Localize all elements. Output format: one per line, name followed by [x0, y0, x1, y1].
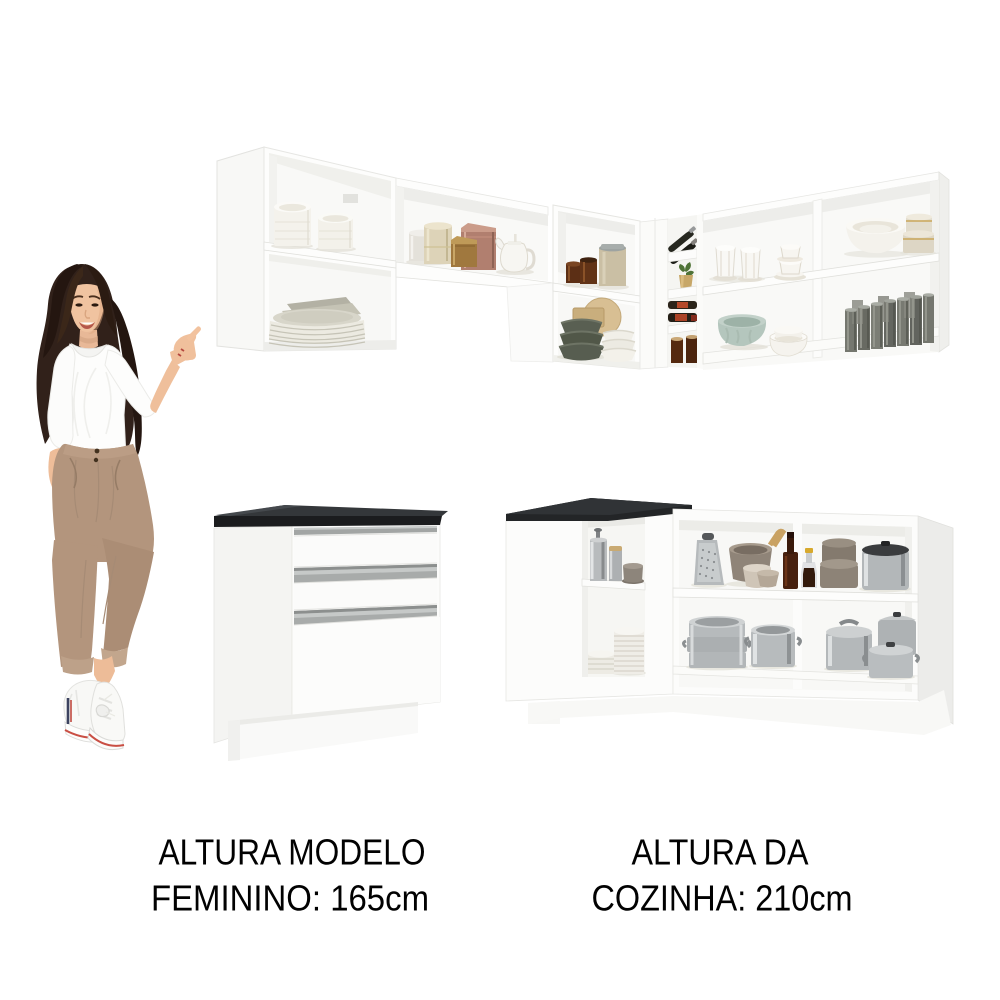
svg-text:FEMININO: 165cm: FEMININO: 165cm: [151, 878, 429, 919]
svg-text:COZINHA: 210cm: COZINHA: 210cm: [592, 878, 853, 919]
svg-text:ALTURA DA: ALTURA DA: [632, 832, 809, 873]
svg-text:ALTURA MODELO: ALTURA MODELO: [159, 832, 426, 873]
